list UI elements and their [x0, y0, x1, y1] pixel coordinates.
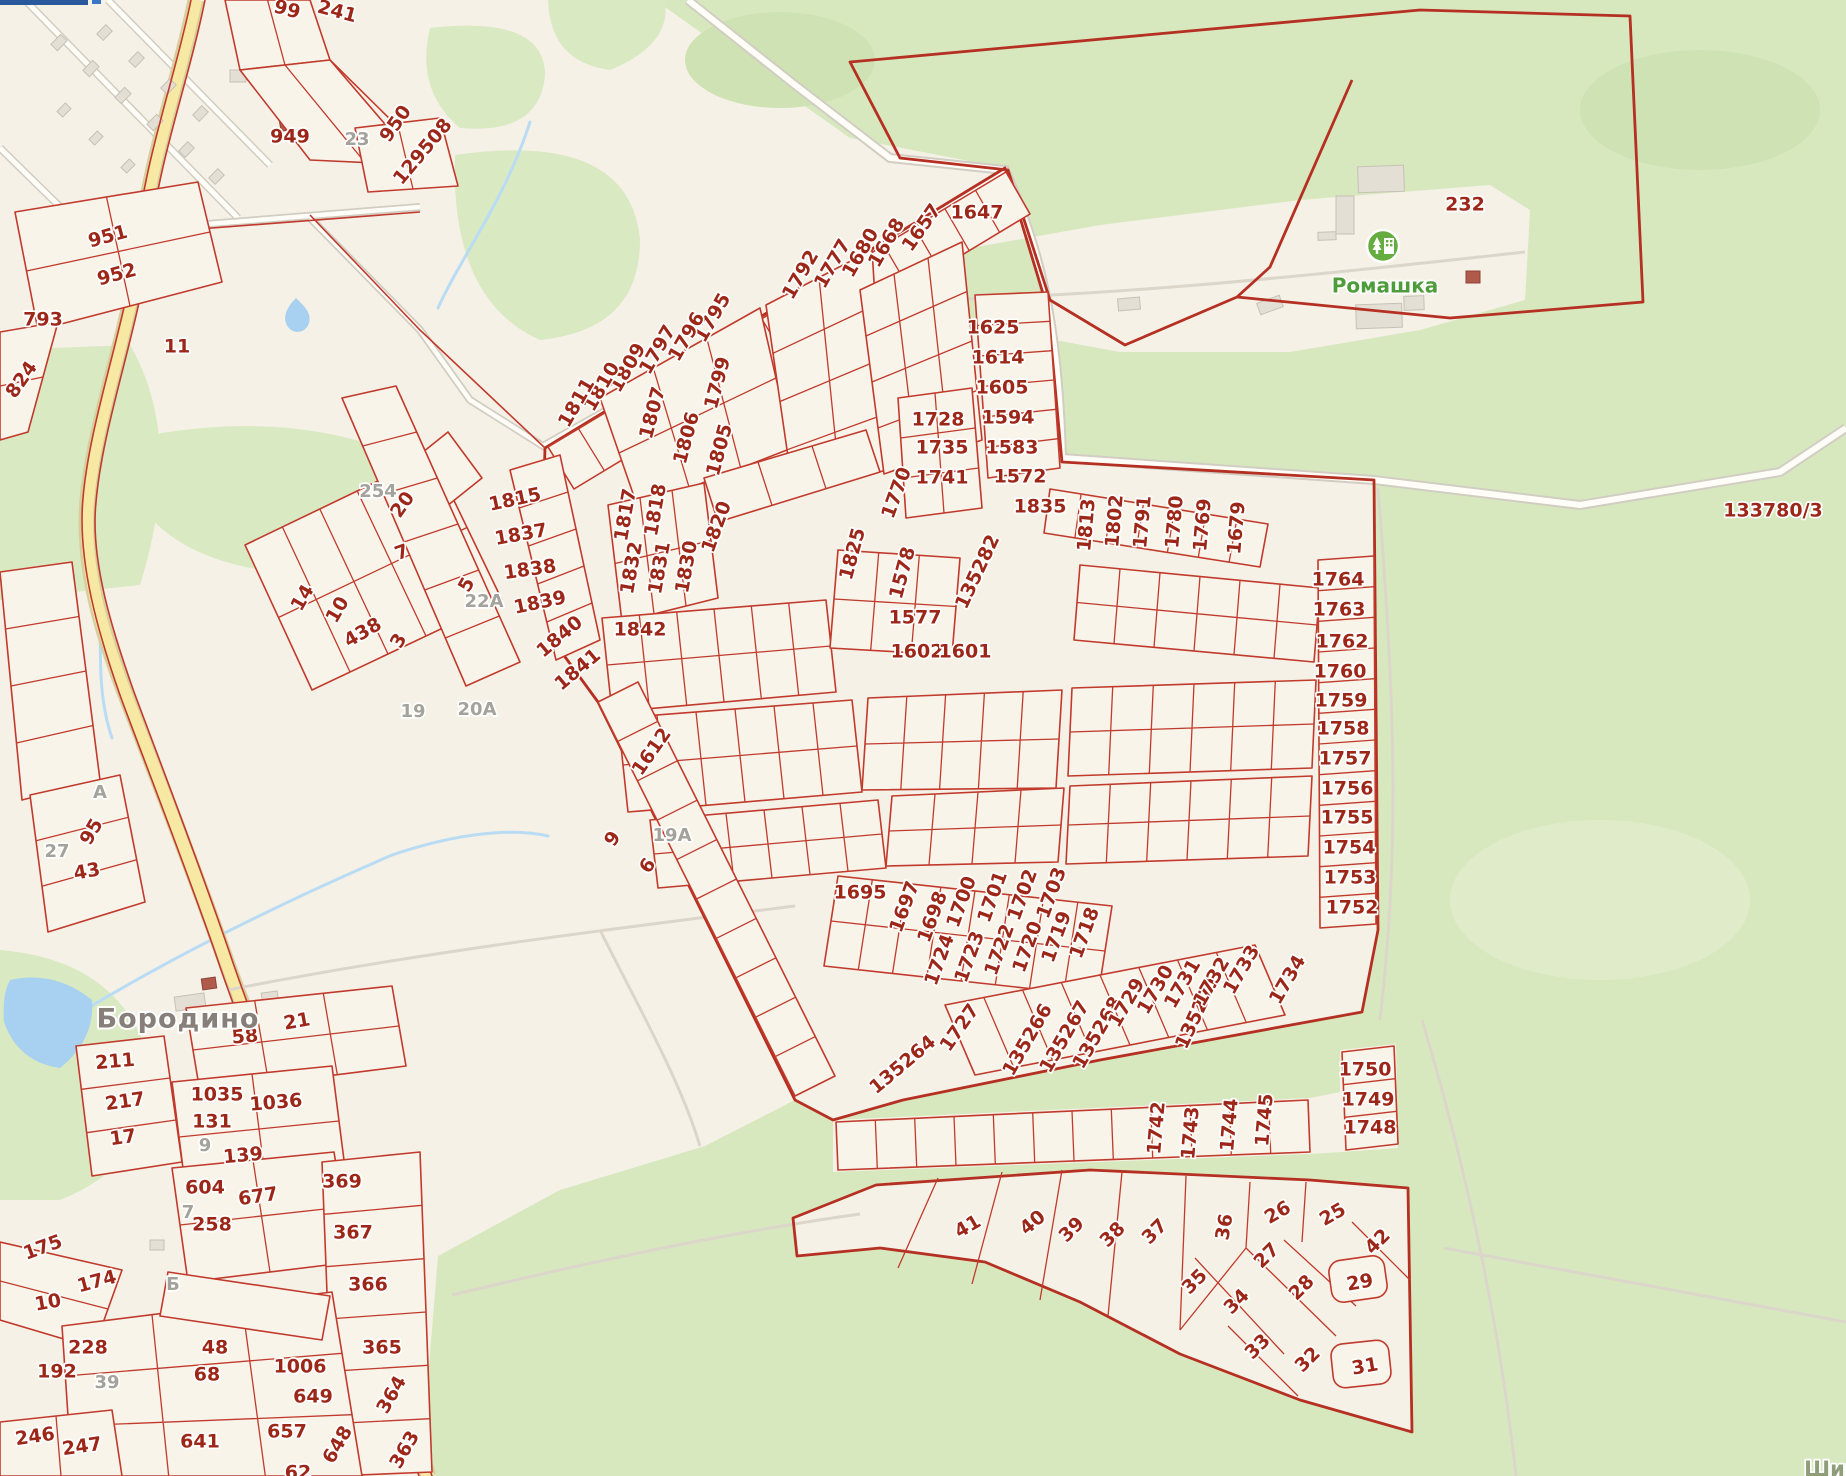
parcel-label[interactable]: 48: [202, 1337, 228, 1359]
parcel-label[interactable]: 367: [333, 1222, 373, 1244]
parcel-label[interactable]: 232: [1445, 194, 1485, 216]
building: [150, 1240, 164, 1250]
parcel-label[interactable]: 1752: [1326, 897, 1379, 919]
parcel-label[interactable]: 1695: [834, 882, 887, 904]
parcel-label[interactable]: 1744: [1216, 1098, 1243, 1153]
parcel-label[interactable]: 1802: [1101, 494, 1128, 549]
parcel-label[interactable]: 1750: [1339, 1059, 1392, 1081]
parcel-label[interactable]: 641: [180, 1431, 220, 1453]
parcel-label[interactable]: 43: [72, 858, 102, 884]
parcel-label[interactable]: 27: [44, 841, 69, 862]
parcel-label[interactable]: 1756: [1321, 778, 1374, 800]
house-building: [1466, 271, 1480, 283]
building: [1336, 196, 1354, 234]
parcel-label[interactable]: 949: [270, 126, 310, 148]
parcel-label[interactable]: 1764: [1312, 569, 1365, 591]
parcel-label[interactable]: 1741: [916, 467, 969, 489]
building: [1318, 232, 1336, 241]
parcel-label[interactable]: 1679: [1223, 501, 1250, 556]
window-edge: [0, 0, 101, 5]
parcel-label[interactable]: 29: [1345, 1269, 1375, 1295]
place-label: Шир: [1804, 1457, 1846, 1476]
parcel-block[interactable]: [886, 788, 1064, 866]
parcel-label[interactable]: 1745: [1251, 1093, 1278, 1148]
parcel-label[interactable]: 36: [1211, 1212, 1237, 1242]
parcel-label[interactable]: 20А: [458, 699, 497, 720]
parcel-label[interactable]: 19А: [653, 825, 692, 846]
building: [1356, 303, 1403, 329]
parcel-label[interactable]: 1780: [1161, 495, 1188, 550]
map-canvas[interactable]: 9924195094923129508951952793118242542075…: [0, 0, 1846, 1476]
parcel-label[interactable]: 1605: [976, 377, 1029, 399]
parcel-label[interactable]: 9: [199, 1135, 212, 1156]
parcel-label[interactable]: 258: [192, 1214, 232, 1236]
parcel-label[interactable]: 1813: [1073, 498, 1100, 553]
parcel-label[interactable]: 7: [182, 1202, 195, 1223]
parcel-label[interactable]: 1763: [1313, 599, 1366, 621]
parcel-label[interactable]: А: [93, 782, 107, 803]
parcel-label[interactable]: 211: [94, 1049, 135, 1074]
parcel-label[interactable]: 1577: [889, 607, 942, 629]
parcel-label[interactable]: 1742: [1143, 1101, 1170, 1156]
parcel-label[interactable]: 31: [1350, 1353, 1380, 1379]
parcel-label[interactable]: 1036: [249, 1089, 304, 1116]
parcel-label[interactable]: 1035: [191, 1084, 244, 1106]
parcel-label[interactable]: Б: [166, 1274, 180, 1295]
parcel-label[interactable]: 1728: [912, 409, 965, 431]
parcel-label[interactable]: 1757: [1319, 748, 1372, 770]
parcel-label[interactable]: 1842: [614, 619, 667, 641]
parcel-label[interactable]: 17: [108, 1125, 137, 1150]
parcel-label[interactable]: 1759: [1315, 690, 1368, 712]
parcel-label[interactable]: 192: [37, 1361, 77, 1383]
parcel-label[interactable]: 1791: [1129, 495, 1156, 550]
parcel-label[interactable]: 11: [164, 336, 190, 358]
parcel-label[interactable]: 1753: [1324, 867, 1377, 889]
parcel-label[interactable]: 1583: [986, 437, 1039, 459]
house-building: [201, 977, 216, 990]
parcel-label[interactable]: 1769: [1189, 498, 1216, 553]
parcel-block[interactable]: [1068, 680, 1316, 776]
parcel-label[interactable]: 68: [194, 1364, 220, 1386]
parcel-label[interactable]: 1647: [951, 202, 1004, 224]
parcel-label[interactable]: 21: [282, 1008, 312, 1034]
parcel-label[interactable]: 1601: [939, 641, 992, 663]
building: [1118, 297, 1141, 311]
parcel-label[interactable]: 1748: [1344, 1117, 1397, 1139]
parcel-label[interactable]: 1614: [972, 347, 1025, 369]
map-viewport[interactable]: 9924195094923129508951952793118242542075…: [0, 0, 1846, 1476]
building: [1404, 296, 1424, 311]
parcel-label[interactable]: 1754: [1323, 837, 1376, 859]
parcel-label[interactable]: 1835: [1014, 496, 1067, 518]
parcel-label[interactable]: 1760: [1314, 661, 1367, 683]
parcel-label[interactable]: 604: [185, 1177, 225, 1199]
parcel-label[interactable]: 657: [267, 1421, 307, 1443]
parcel-label[interactable]: 10: [33, 1289, 63, 1315]
parcel-label[interactable]: 365: [362, 1337, 402, 1359]
parcel-label[interactable]: 228: [68, 1337, 108, 1359]
parcel-label[interactable]: 139: [222, 1143, 263, 1168]
parcel-label[interactable]: 369: [322, 1171, 362, 1193]
parcel-label[interactable]: 649: [293, 1386, 333, 1408]
parcel-label[interactable]: 254: [359, 481, 397, 502]
parcel-label[interactable]: 366: [348, 1274, 388, 1296]
parcel-label[interactable]: 1572: [994, 466, 1047, 488]
parcel-label[interactable]: 1755: [1321, 807, 1374, 829]
parcel-block[interactable]: [862, 690, 1062, 790]
parcel-label[interactable]: 131: [192, 1111, 232, 1133]
parcel-label[interactable]: 1743: [1177, 1106, 1204, 1161]
parcel-label[interactable]: 1602: [891, 641, 944, 663]
place-label: Ромашка: [1332, 274, 1439, 298]
parcel-label[interactable]: 1749: [1342, 1089, 1395, 1111]
parcel-label[interactable]: 22А: [465, 591, 504, 612]
parcel-block[interactable]: [1066, 776, 1312, 864]
building: [1358, 165, 1405, 193]
parcel-label[interactable]: 1735: [916, 437, 969, 459]
parcel-label[interactable]: 1762: [1316, 631, 1369, 653]
place-label: Бородино: [97, 1004, 260, 1035]
parcel-label[interactable]: 62: [285, 1462, 311, 1476]
parcel-label[interactable]: 39: [94, 1372, 119, 1393]
parcel-label[interactable]: 133780/3: [1723, 500, 1822, 522]
parcel-label[interactable]: 1758: [1317, 718, 1370, 740]
parcel-label[interactable]: 1625: [967, 317, 1020, 339]
romashka-poi-icon[interactable]: [1367, 230, 1399, 262]
parcel-label[interactable]: 793: [23, 309, 63, 331]
parcel-label[interactable]: 23: [344, 129, 369, 150]
parcel-label[interactable]: 19: [400, 701, 425, 722]
parcel-label[interactable]: 1594: [982, 407, 1035, 429]
parcel-label[interactable]: 1006: [274, 1356, 327, 1378]
